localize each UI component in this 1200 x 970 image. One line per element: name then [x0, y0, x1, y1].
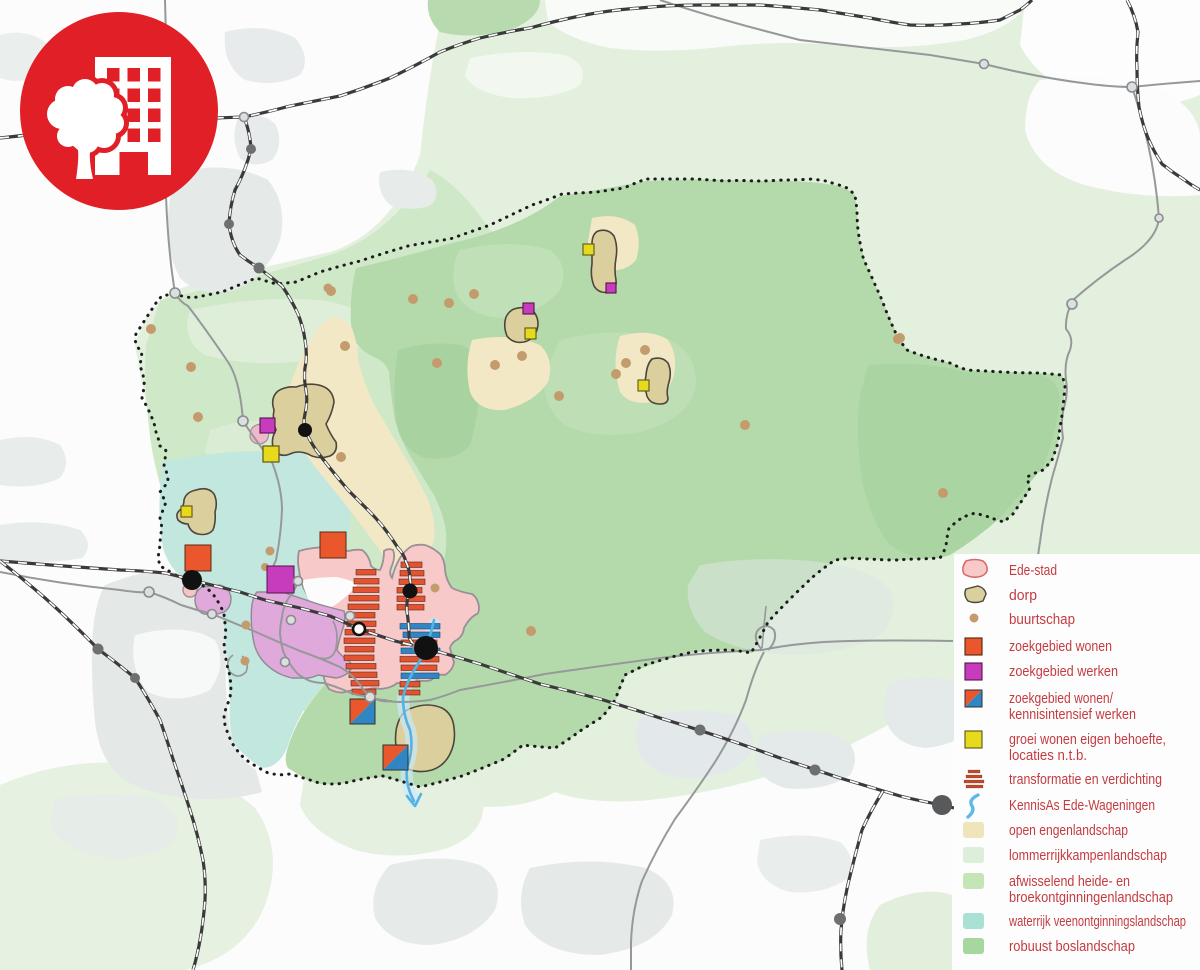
svg-text:zoekgebied werken: zoekgebied werken	[1009, 663, 1118, 680]
svg-text:zoekgebied wonen: zoekgebied wonen	[1009, 638, 1112, 655]
svg-text:KennisAs Ede-Wageningen: KennisAs Ede-Wageningen	[1009, 797, 1155, 814]
svg-text:buurtschap: buurtschap	[1009, 611, 1075, 628]
svg-text:groei wonen eigen behoefte,: groei wonen eigen behoefte,	[1009, 731, 1166, 748]
svg-text:Ede-stad: Ede-stad	[1009, 562, 1057, 579]
svg-text:transformatie en verdichting: transformatie en verdichting	[1009, 771, 1162, 788]
svg-text:dorp: dorp	[1009, 587, 1037, 604]
svg-text:lommerrijkkampenlandschap: lommerrijkkampenlandschap	[1009, 847, 1167, 864]
svg-text:robuust boslandschap: robuust boslandschap	[1009, 938, 1135, 955]
svg-text:broekontginningenlandschap: broekontginningenlandschap	[1009, 889, 1173, 906]
svg-text:zoekgebied wonen/: zoekgebied wonen/	[1009, 690, 1114, 707]
svg-text:locaties n.t.b.: locaties n.t.b.	[1009, 747, 1087, 764]
svg-text:kennisintensief werken: kennisintensief werken	[1009, 706, 1136, 723]
svg-text:waterrijk veenontginningslands: waterrijk veenontginningslandschap	[1008, 913, 1186, 930]
svg-text:afwisselend heide- en: afwisselend heide- en	[1009, 873, 1130, 890]
svg-text:open engenlandschap: open engenlandschap	[1009, 822, 1128, 839]
